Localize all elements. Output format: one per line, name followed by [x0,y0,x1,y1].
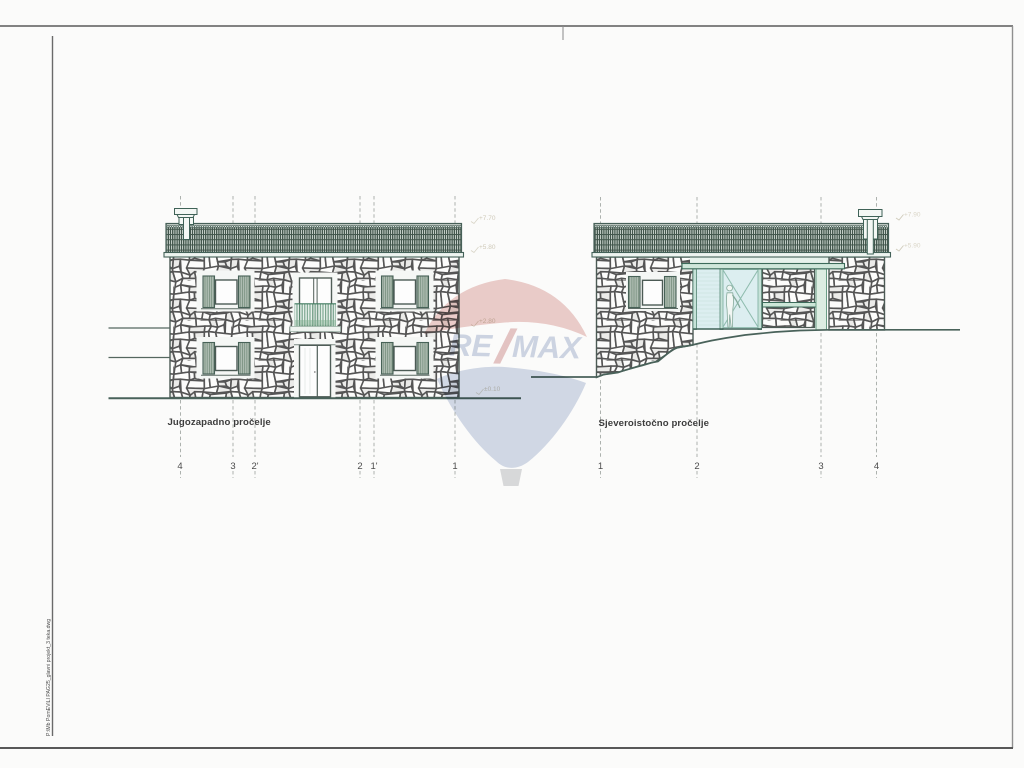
svg-text:+5.90: +5.90 [904,243,921,250]
svg-text:+5.80: +5.80 [479,244,496,251]
svg-text:4: 4 [874,461,879,472]
svg-text:3: 3 [818,461,823,472]
svg-text:P:\Mb PomEViLI PAG25_glavni pr: P:\Mb PomEViLI PAG25_glavni projekt_3 te… [46,619,52,736]
svg-text:2: 2 [357,461,362,472]
svg-text:+7.70: +7.70 [479,215,496,222]
svg-text:RE: RE [449,328,494,364]
svg-text:+7.90: +7.90 [904,212,921,219]
svg-text:1: 1 [452,461,457,472]
svg-text:Jugozapadno pročelje: Jugozapadno pročelje [168,417,271,428]
svg-text:1': 1' [370,461,377,472]
svg-text:2: 2 [694,461,699,472]
svg-text:3: 3 [230,461,235,472]
svg-text:Sjeveroistočno pročelje: Sjeveroistočno pročelje [599,418,710,429]
svg-text:2': 2' [251,461,258,472]
svg-text:4: 4 [177,461,182,472]
svg-text:MAX: MAX [512,329,584,366]
svg-text:1: 1 [598,461,603,472]
